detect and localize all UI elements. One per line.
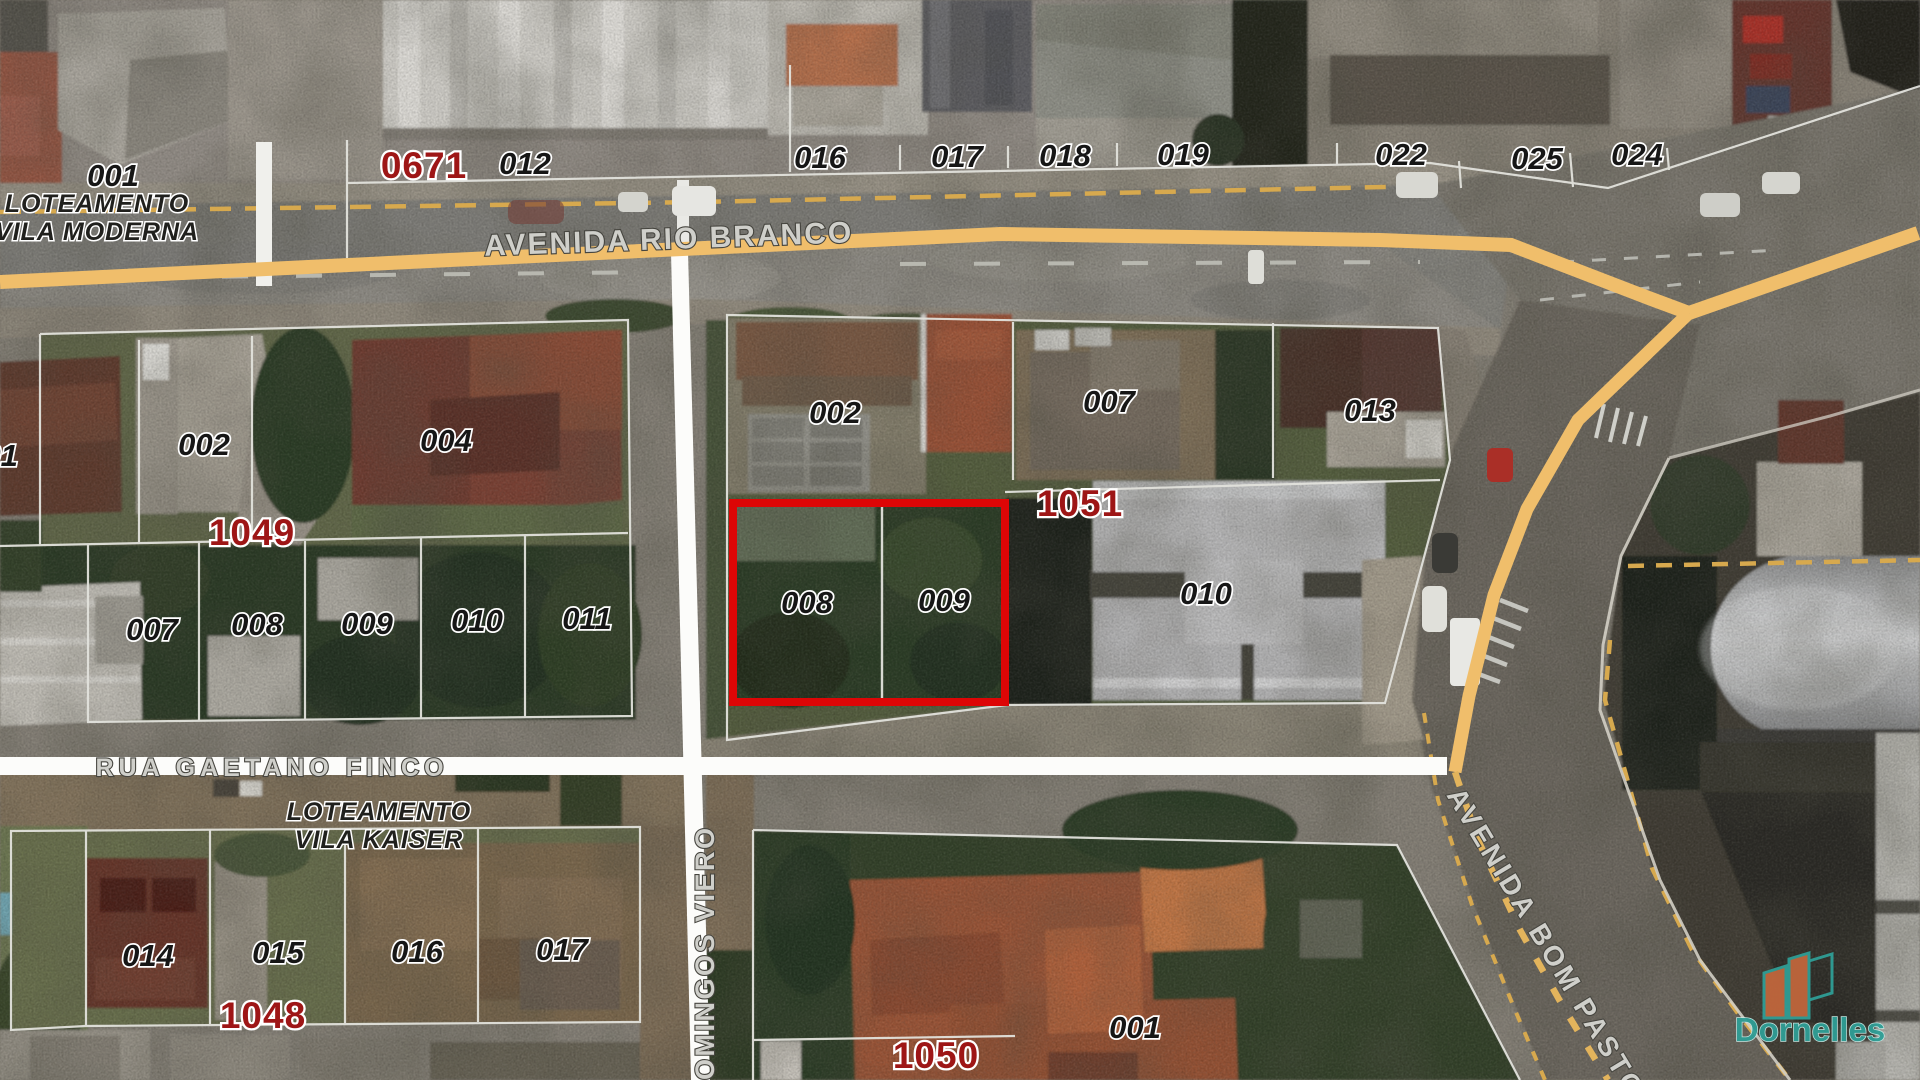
svg-text:Dornelles: Dornelles: [1735, 1011, 1885, 1048]
svg-text:025: 025: [1511, 141, 1563, 176]
svg-text:VILA MODERNA: VILA MODERNA: [0, 218, 199, 246]
svg-text:015: 015: [252, 935, 304, 970]
svg-text:1051: 1051: [1037, 483, 1123, 524]
svg-text:004: 004: [420, 423, 472, 458]
svg-text:014: 014: [122, 938, 174, 973]
svg-text:009: 009: [341, 606, 393, 641]
svg-text:1050: 1050: [893, 1035, 979, 1076]
svg-text:VILA KAISER: VILA KAISER: [295, 826, 463, 854]
svg-text:009: 009: [918, 583, 970, 618]
svg-text:022: 022: [1375, 137, 1427, 172]
svg-text:002: 002: [809, 395, 861, 430]
svg-text:LOTEAMENTO: LOTEAMENTO: [287, 798, 472, 826]
svg-text:011: 011: [562, 601, 611, 636]
svg-text:002: 002: [178, 427, 230, 462]
svg-text:007: 007: [1083, 384, 1136, 419]
svg-text:008: 008: [231, 607, 283, 642]
svg-text:017: 017: [536, 932, 589, 967]
svg-text:RUA GAETANO FINCO: RUA GAETANO FINCO: [95, 754, 448, 782]
svg-text:016: 016: [391, 934, 443, 969]
svg-text:1048: 1048: [220, 995, 306, 1036]
svg-text:017: 017: [931, 139, 984, 174]
svg-text:010: 010: [1180, 576, 1232, 611]
svg-text:LOTEAMENTO: LOTEAMENTO: [5, 190, 190, 218]
svg-text:019: 019: [1157, 137, 1209, 172]
svg-text:016: 016: [794, 140, 846, 175]
svg-text:024: 024: [1611, 137, 1663, 172]
svg-text:001: 001: [1109, 1010, 1161, 1045]
svg-text:DOMINGOS VIERO: DOMINGOS VIERO: [690, 825, 720, 1080]
svg-text:1049: 1049: [209, 512, 295, 553]
svg-text:010: 010: [451, 603, 503, 638]
svg-text:012: 012: [499, 146, 551, 181]
svg-text:001: 001: [0, 438, 18, 473]
svg-text:007: 007: [126, 612, 179, 647]
svg-text:013: 013: [1344, 393, 1396, 428]
svg-text:008: 008: [781, 585, 833, 620]
svg-text:0671: 0671: [381, 145, 467, 186]
svg-text:001: 001: [87, 158, 139, 193]
svg-text:018: 018: [1039, 138, 1091, 173]
